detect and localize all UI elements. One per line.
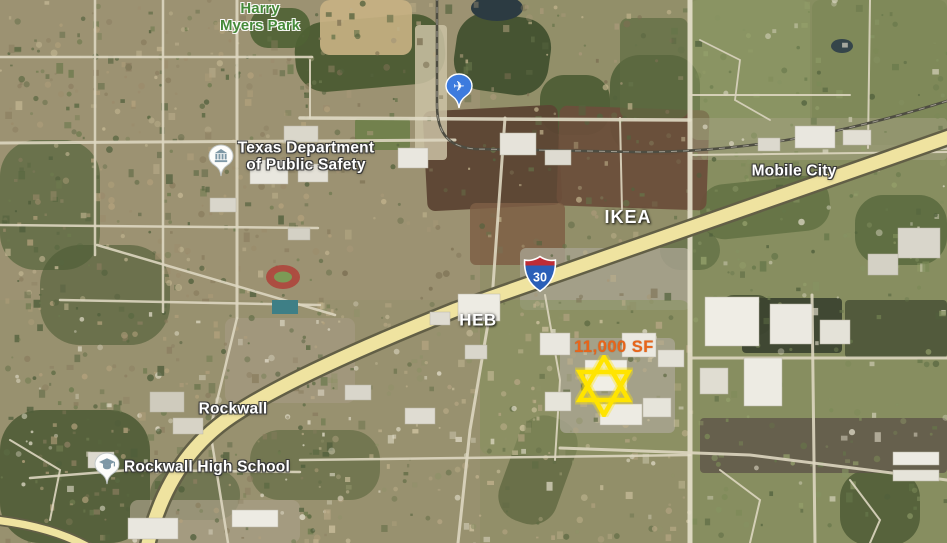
graduation-cap-icon (94, 452, 120, 485)
rockwall-text: Rockwall (199, 400, 268, 417)
heb-text: HEB (459, 310, 496, 329)
map-viewport[interactable]: Harry Myers Park Texas Department of Pub… (0, 0, 947, 543)
interstate-shield-icon: 30 (523, 255, 557, 293)
site-size-text: 11,000 SF (574, 338, 654, 356)
mobile-city-text: Mobile City (752, 162, 837, 179)
map-label-mobile-city: Mobile City (752, 162, 837, 179)
route-number: 30 (533, 271, 547, 285)
site-size-annotation: 11,000 SF (574, 338, 654, 356)
airport-pin[interactable]: ✈ (445, 73, 473, 114)
airplane-icon: ✈ (445, 73, 473, 109)
map-annotation-ikea: IKEA (604, 207, 651, 227)
dps-label-line2: of Public Safety (238, 157, 374, 174)
government-pin[interactable] (208, 144, 234, 182)
park-label-line1: Harry (220, 1, 300, 18)
six-pointed-star-icon (575, 355, 633, 417)
map-label-dps[interactable]: Texas Department of Public Safety (238, 140, 374, 175)
government-building-icon (208, 144, 234, 177)
high-school-text: Rockwall High School (124, 458, 290, 475)
svg-text:✈: ✈ (453, 79, 465, 95)
map-annotation-heb: HEB (459, 310, 496, 329)
site-star-marker (575, 355, 633, 422)
school-pin[interactable] (94, 452, 120, 490)
ikea-text: IKEA (604, 207, 651, 227)
map-label-rockwall: Rockwall (199, 400, 268, 417)
dps-label-line1: Texas Department (238, 140, 374, 157)
map-label-rockwall-high-school[interactable]: Rockwall High School (124, 458, 290, 475)
park-label-line2: Myers Park (220, 18, 300, 35)
map-label-harry-myers-park[interactable]: Harry Myers Park (220, 1, 300, 35)
interstate-30-shield: 30 (523, 255, 557, 298)
